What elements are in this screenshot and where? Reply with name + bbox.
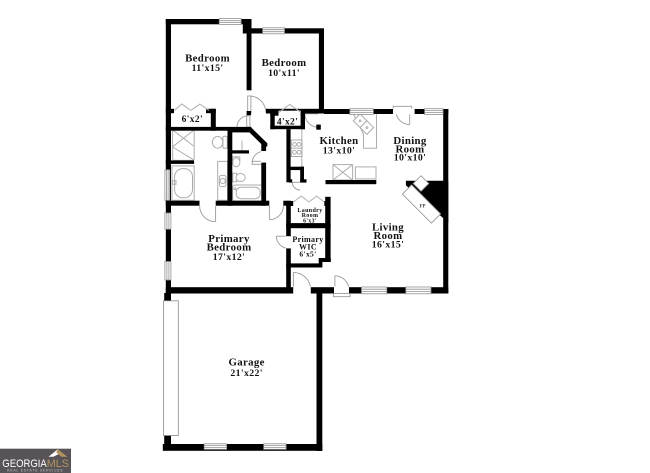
svg-text:FP: FP [419, 204, 425, 209]
svg-text:11'x15': 11'x15' [192, 63, 224, 74]
svg-text:6'x2': 6'x2' [182, 115, 203, 125]
svg-text:4'x2': 4'x2' [277, 118, 298, 128]
svg-text:6'x5': 6'x5' [299, 250, 316, 259]
svg-text:21'x22': 21'x22' [230, 368, 262, 379]
svg-text:16'x15': 16'x15' [372, 240, 404, 251]
svg-text:REAL ESTATE SERVICES: REAL ESTATE SERVICES [7, 469, 63, 473]
svg-text:13'x10': 13'x10' [323, 146, 355, 157]
svg-text:Garage: Garage [228, 357, 264, 369]
svg-text:10'x11': 10'x11' [268, 68, 300, 79]
svg-text:10'x10': 10'x10' [394, 153, 426, 164]
svg-text:17'x12': 17'x12' [213, 252, 245, 263]
svg-text:6'x3': 6'x3' [303, 218, 317, 224]
